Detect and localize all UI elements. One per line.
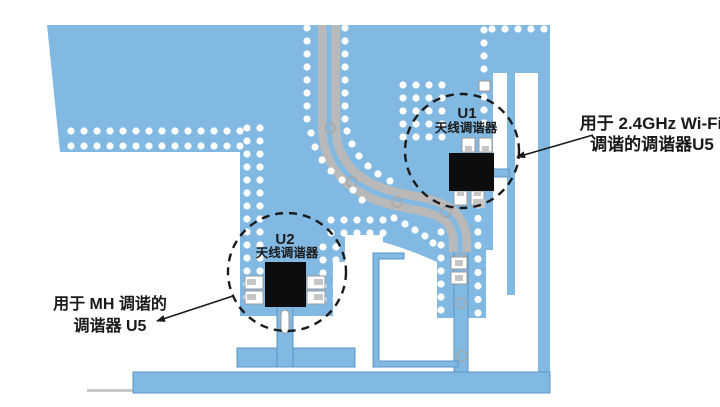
via-dot xyxy=(474,309,481,316)
via-dot xyxy=(527,25,534,32)
via-dot xyxy=(488,25,495,32)
u2-pad-nub xyxy=(247,279,256,285)
via-dot xyxy=(474,255,481,262)
via-dot xyxy=(184,142,191,149)
via-dot xyxy=(437,293,444,300)
feed-component-nub xyxy=(455,275,463,281)
via-dot xyxy=(474,282,481,289)
via-dot xyxy=(425,133,432,140)
via-dot xyxy=(540,25,547,32)
frame-right-leg xyxy=(538,73,550,393)
via-dot xyxy=(348,140,355,147)
via-dot xyxy=(303,24,310,31)
via-dot xyxy=(332,269,339,276)
via-dot xyxy=(256,150,263,157)
via-dot xyxy=(379,229,386,236)
via-dot xyxy=(437,241,444,248)
feed-component-nub xyxy=(455,260,463,266)
via-dot xyxy=(256,124,263,131)
via-dot xyxy=(67,142,74,149)
via-dot xyxy=(158,142,165,149)
via-dot xyxy=(132,127,139,134)
via-dot xyxy=(438,81,445,88)
via-dot xyxy=(243,267,250,274)
via-dot xyxy=(327,216,334,223)
wifi-annotation-line1: 用于 2.4GHz Wi-Fi xyxy=(580,114,720,133)
via-dot xyxy=(399,81,406,88)
u2-chip xyxy=(265,262,306,307)
strip-pad xyxy=(479,81,490,91)
pcb-layout-figure: U1 天线调谐器 U2 天线调谐器 用于 2.4GHz Wi-Fi 调谐的调谐器… xyxy=(0,0,720,407)
via-dot xyxy=(243,176,250,183)
mh-annotation-line2: 调谐器 U5 xyxy=(74,317,147,335)
u2-pad-nub xyxy=(314,279,323,285)
via-dot xyxy=(210,127,217,134)
via-dot xyxy=(474,228,481,235)
via-dot xyxy=(353,216,360,223)
via-dot xyxy=(210,142,217,149)
via-dot xyxy=(256,189,263,196)
via-dot xyxy=(366,216,373,223)
via-dot xyxy=(243,150,250,157)
pcb-diagram-svg: U1 天线调谐器 U2 天线调谐器 用于 2.4GHz Wi-Fi 调谐的调谐器… xyxy=(0,0,720,407)
via-dot xyxy=(474,215,481,222)
via-dot xyxy=(412,94,419,101)
via-dot xyxy=(399,120,406,127)
via-dot xyxy=(256,267,263,274)
via-dot xyxy=(437,267,444,274)
via-dot xyxy=(332,256,339,263)
via-dot xyxy=(437,254,444,261)
via-dot xyxy=(80,127,87,134)
via-dot xyxy=(341,24,348,31)
via-dot xyxy=(132,142,139,149)
via-dot xyxy=(412,120,419,127)
via-dot xyxy=(349,186,356,193)
via-dot xyxy=(341,76,348,83)
via-dot xyxy=(390,214,397,221)
via-dot xyxy=(501,25,508,32)
via-dot xyxy=(480,52,487,59)
via-dot xyxy=(412,133,419,140)
via-dot xyxy=(425,94,432,101)
via-dot xyxy=(243,189,250,196)
via-dot xyxy=(425,107,432,114)
u1-chip xyxy=(449,153,494,191)
u1-pad-nub xyxy=(474,191,481,196)
via-dot xyxy=(93,127,100,134)
via-dot xyxy=(303,63,310,70)
via-dot xyxy=(401,220,408,227)
via-dot xyxy=(429,239,436,246)
u1-part-label: 天线调谐器 xyxy=(435,120,498,135)
via-dot xyxy=(145,142,152,149)
board-edge-line xyxy=(87,389,135,392)
via-dot xyxy=(197,142,204,149)
via-dot xyxy=(243,254,250,261)
via-dot xyxy=(106,142,113,149)
via-dot xyxy=(343,127,350,134)
via-dot xyxy=(119,127,126,134)
via-dot xyxy=(480,26,487,33)
via-dot xyxy=(223,142,230,149)
mh-annotation-arrow xyxy=(157,296,233,321)
u2-feed-slot xyxy=(281,310,289,333)
via-dot xyxy=(514,25,521,32)
via-dot xyxy=(425,81,432,88)
u1-pad-nub xyxy=(465,146,472,151)
via-dot xyxy=(332,282,339,289)
via-dot xyxy=(319,256,326,263)
via-dot xyxy=(474,296,481,303)
via-dot xyxy=(338,176,345,183)
via-dot xyxy=(340,216,347,223)
via-dot xyxy=(311,143,318,150)
via-dot xyxy=(341,102,348,109)
via-dot xyxy=(303,37,310,44)
via-dot xyxy=(474,269,481,276)
via-dot xyxy=(366,229,373,236)
u2-pad-nub xyxy=(247,294,256,300)
via-dot xyxy=(399,133,406,140)
via-dot xyxy=(480,65,487,72)
via-dot xyxy=(256,137,263,144)
via-dot xyxy=(243,124,250,131)
via-dot xyxy=(341,37,348,44)
via-dot xyxy=(307,129,314,136)
via-dot xyxy=(171,142,178,149)
mh-annotation-line1: 用于 MH 调谐的 xyxy=(53,294,167,313)
via-dot xyxy=(67,127,74,134)
via-dot xyxy=(437,228,444,235)
via-dot xyxy=(243,137,250,144)
via-dot xyxy=(358,196,365,203)
via-dot xyxy=(364,162,371,169)
via-dot xyxy=(197,127,204,134)
via-dot xyxy=(341,89,348,96)
via-dot xyxy=(303,102,310,109)
via-dot xyxy=(386,177,393,184)
via-dot xyxy=(243,215,250,222)
via-dot xyxy=(340,229,347,236)
via-dot xyxy=(412,107,419,114)
u1-ref-label: U1 xyxy=(457,105,476,122)
u1-pad-nub xyxy=(482,146,489,151)
via-dot xyxy=(184,127,191,134)
via-dot xyxy=(106,127,113,134)
via-dot xyxy=(303,115,310,122)
via-dot xyxy=(256,163,263,170)
via-dot xyxy=(171,127,178,134)
via-dot xyxy=(425,120,432,127)
via-dot xyxy=(327,167,334,174)
via-dot xyxy=(223,127,230,134)
via-dot xyxy=(437,280,444,287)
via-dot xyxy=(145,127,152,134)
via-dot xyxy=(80,142,87,149)
via-dot xyxy=(303,50,310,57)
via-dot xyxy=(438,107,445,114)
u2-feed-bar xyxy=(237,348,355,367)
via-dot xyxy=(412,81,419,88)
via-dot xyxy=(256,202,263,209)
via-dot xyxy=(437,319,444,326)
via-dot xyxy=(243,241,250,248)
via-dot xyxy=(256,228,263,235)
bottom-ground-bar xyxy=(133,372,550,393)
via-dot xyxy=(119,142,126,149)
wifi-annotation-arrow xyxy=(517,135,593,157)
via-dot xyxy=(236,127,243,134)
u1-pad-nub xyxy=(457,191,464,196)
via-dot xyxy=(318,156,325,163)
via-dot xyxy=(93,142,100,149)
via-dot xyxy=(474,242,481,249)
via-dot xyxy=(411,226,418,233)
via-dot xyxy=(243,163,250,170)
via-dot xyxy=(480,106,487,113)
via-dot xyxy=(355,152,362,159)
via-dot xyxy=(353,229,360,236)
copper-right-region xyxy=(340,25,550,318)
u1-right-stub xyxy=(493,169,509,177)
via-dot xyxy=(480,39,487,46)
via-dot xyxy=(379,216,386,223)
via-dot xyxy=(236,142,243,149)
via-dot xyxy=(303,76,310,83)
via-dot xyxy=(303,89,310,96)
via-dot xyxy=(341,115,348,122)
u2-pad-nub xyxy=(314,294,323,300)
via-dot xyxy=(243,202,250,209)
via-dot xyxy=(341,50,348,57)
via-dot xyxy=(399,94,406,101)
via-dot xyxy=(437,306,444,313)
via-dot xyxy=(158,127,165,134)
via-dot xyxy=(319,243,326,250)
via-dot xyxy=(256,176,263,183)
via-dot xyxy=(341,63,348,70)
via-dot xyxy=(374,170,381,177)
via-dot xyxy=(399,107,406,114)
wifi-annotation-line2: 调谐的调谐器U5 xyxy=(590,134,714,154)
u2-part-label: 天线调谐器 xyxy=(256,245,319,260)
via-dot xyxy=(421,232,428,239)
